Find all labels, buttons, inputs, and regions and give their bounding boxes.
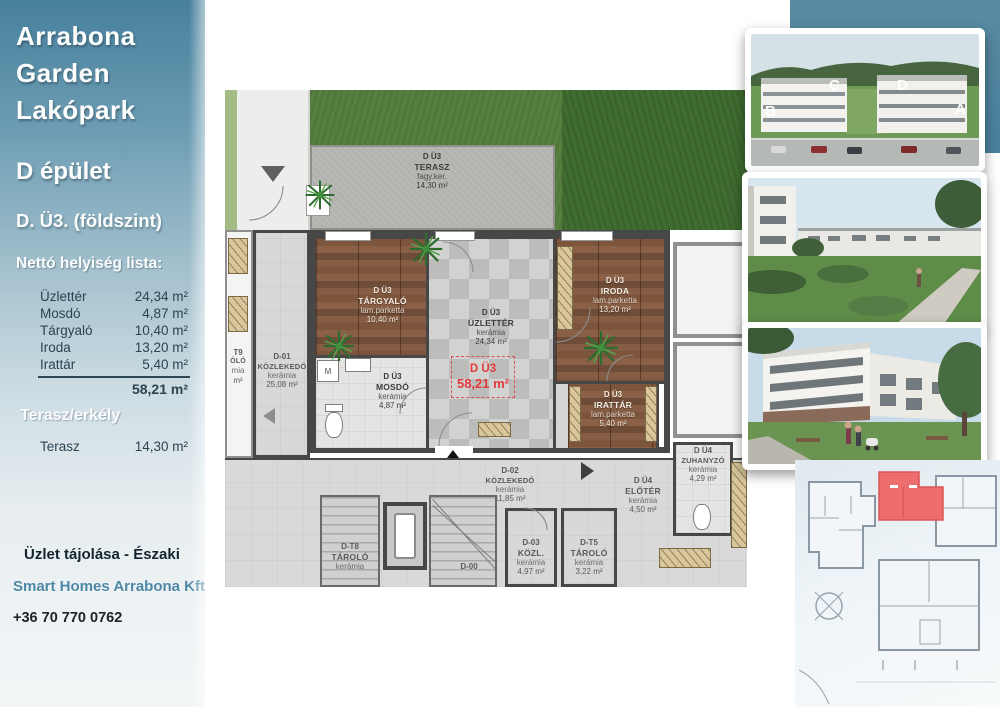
room-area: 10,40 m² bbox=[135, 322, 188, 339]
compass-icon bbox=[815, 592, 843, 620]
room-label-du4-eloter: D Ü4 ELŐTÉR kerámia 4,50 m² bbox=[615, 476, 671, 515]
room-area: 5,40 m² bbox=[142, 356, 188, 373]
room-name: TÁRGYALÓ bbox=[335, 296, 430, 306]
room-unit: D Ü3 bbox=[573, 390, 653, 400]
room-name: MOSDÓ bbox=[355, 382, 430, 392]
room-label-dt9-fragment: T9 ÓLÓ mia m² bbox=[225, 348, 251, 385]
unit-highlight-box: D Ü3 58,21 m² bbox=[451, 356, 515, 398]
toilet-tank bbox=[325, 404, 343, 412]
room-material: lam.parketta bbox=[575, 296, 655, 306]
room-list-table: Üzlettér 24,34 m² Mosdó 4,87 m² Tárgyaló… bbox=[40, 288, 188, 398]
room-unit: D-00 bbox=[447, 562, 491, 572]
room-label-iroda: D Ü3 IRODA lam.parketta 13,20 m² bbox=[575, 276, 655, 315]
project-title-line3: Lakópark bbox=[16, 92, 136, 129]
adjacent-room-right-2 bbox=[673, 342, 747, 438]
room-name: IRATTÁR bbox=[573, 400, 653, 410]
elevator-cab bbox=[394, 513, 416, 559]
room-label-dt8: D-T8 TÁROLÓ kerámia bbox=[318, 542, 382, 571]
company-name: Smart Homes Arrabona Kft bbox=[13, 578, 205, 595]
table-row: Tárgyaló 10,40 m² bbox=[40, 322, 188, 339]
room-unit: D Ü3 bbox=[441, 308, 541, 318]
orientation-note: Üzlet tájolása - Északi bbox=[24, 546, 180, 563]
room-area: 5,40 m² bbox=[573, 419, 653, 429]
room-name: ÓLÓ bbox=[225, 358, 251, 366]
terrace-section-title: Terasz/erkély bbox=[20, 407, 120, 425]
room-label-mosdo: D Ü3 MOSDÓ kerámia 4,87 m² bbox=[355, 372, 430, 411]
room-material: kerámia bbox=[254, 371, 310, 381]
room-material: fagy.ker. bbox=[377, 172, 487, 182]
room-name: TÁROLÓ bbox=[318, 552, 382, 562]
stair-diagonal bbox=[432, 505, 497, 586]
room-area: 4,50 m² bbox=[615, 505, 671, 515]
room-material: kerámia bbox=[470, 485, 550, 495]
room-unit: D Ü3 bbox=[355, 372, 430, 382]
staircase-d00 bbox=[429, 495, 497, 587]
room-material: kerámia bbox=[561, 558, 617, 568]
room-label-dt5: D-T5 TÁROLÓ kerámia 3,22 m² bbox=[561, 538, 617, 577]
courtyard-render bbox=[748, 178, 981, 324]
project-title-line1: Arrabona bbox=[16, 18, 136, 55]
wardrobe-hatch bbox=[731, 462, 747, 548]
room-label-terasz: D Ü3 TERASZ fagy.ker. 14,30 m² bbox=[377, 152, 487, 191]
room-unit: D-T8 bbox=[318, 542, 382, 552]
plant-icon bbox=[581, 328, 621, 368]
building-letter-d: D bbox=[897, 77, 908, 94]
room-area: 14,30 m² bbox=[377, 181, 487, 191]
room-name: KÖZLEKEDŐ bbox=[470, 476, 550, 485]
key-plan-drawing bbox=[795, 460, 1000, 707]
wardrobe-hatch bbox=[557, 246, 573, 330]
room-material: lam.parketta bbox=[335, 306, 430, 316]
floor-plan: D Ü3 TERASZ fagy.ker. 14,30 m² M bbox=[225, 90, 747, 587]
room-name: ZUHANYZÓ bbox=[673, 456, 733, 465]
sidebar: Arrabona Garden Lakópark D épület D. Ü3.… bbox=[0, 0, 205, 707]
building-letter-b: B bbox=[765, 103, 776, 120]
room-name: KÖZL. bbox=[505, 548, 557, 558]
room-name: ÜZLETTÉR bbox=[441, 318, 541, 328]
room-label-irattar: D Ü3 IRATTÁR lam.parketta 5,40 m² bbox=[573, 390, 653, 429]
street-render bbox=[748, 328, 981, 464]
phone-number: +36 70 770 0762 bbox=[13, 610, 122, 626]
table-row: Terasz 14,30 m² bbox=[40, 438, 188, 455]
building-letter-c: C bbox=[829, 77, 840, 94]
room-name: Iroda bbox=[40, 339, 71, 356]
room-area: 10,40 m² bbox=[335, 315, 430, 325]
room-material: kerámia bbox=[355, 392, 430, 402]
walkway bbox=[225, 90, 310, 230]
room-unit: D Ü3 bbox=[575, 276, 655, 286]
room-area: 24,34 m² bbox=[135, 288, 188, 305]
room-unit: D-T5 bbox=[561, 538, 617, 548]
room-area: 4,97 m² bbox=[505, 567, 557, 577]
terrace-name: Terasz bbox=[40, 438, 80, 455]
room-name: Irattár bbox=[40, 356, 75, 373]
room-name: KÖZLEKEDŐ bbox=[254, 362, 310, 371]
terrace-table: Terasz 14,30 m² bbox=[40, 438, 188, 455]
cabinet-hatch bbox=[228, 238, 248, 274]
room-unit: D-02 bbox=[470, 466, 550, 476]
window bbox=[561, 231, 613, 241]
room-area: 13,20 m² bbox=[135, 339, 188, 356]
room-name: Tárgyaló bbox=[40, 322, 93, 339]
room-area: 4,29 m² bbox=[673, 474, 733, 484]
room-material: kerámia bbox=[615, 496, 671, 506]
aerial-render: B C D A bbox=[751, 34, 979, 166]
room-material: mia bbox=[225, 366, 251, 376]
room-area: 13,20 m² bbox=[575, 305, 655, 315]
staircase-dt8 bbox=[320, 495, 380, 587]
room-area: 3,22 m² bbox=[561, 567, 617, 577]
room-label-targyalo: D Ü3 TÁRGYALÓ lam.parketta 10,40 m² bbox=[335, 286, 430, 325]
toilet bbox=[693, 504, 711, 530]
photo-aerial-view: B C D A bbox=[745, 28, 985, 172]
room-label-uzletter: D Ü3 ÜZLETTÉR kerámia 24,34 m² bbox=[441, 308, 541, 347]
terrace-area: 14,30 m² bbox=[135, 438, 188, 455]
room-name: IRODA bbox=[575, 286, 655, 296]
site-key-plan bbox=[795, 460, 1000, 707]
room-material: kerámia bbox=[673, 465, 733, 475]
room-material: kerámia bbox=[441, 328, 541, 338]
room-area: 24,34 m² bbox=[441, 337, 541, 347]
cabinet-hatch bbox=[228, 296, 248, 332]
room-label-du4-zuhanyzo: D Ü4 ZUHANYZÓ kerámia 4,29 m² bbox=[673, 446, 733, 484]
plant-icon bbox=[407, 230, 445, 268]
corridor-d01 bbox=[253, 230, 310, 458]
room-area: 4,87 m² bbox=[142, 305, 188, 322]
elevator bbox=[383, 502, 427, 570]
table-row: Iroda 13,20 m² bbox=[40, 339, 188, 356]
room-name: TÁROLÓ bbox=[561, 548, 617, 558]
room-unit: D Ü4 bbox=[673, 446, 733, 456]
room-name: Mosdó bbox=[40, 305, 81, 322]
bench-hatch bbox=[659, 548, 711, 568]
room-unit: D Ü3 bbox=[335, 286, 430, 296]
room-unit: D-01 bbox=[254, 352, 310, 362]
adjacent-room-right-1 bbox=[673, 242, 747, 338]
corridor-arrow-icon bbox=[263, 408, 275, 424]
building-name: D épület bbox=[16, 158, 111, 186]
total-area: 58,21 m² bbox=[40, 380, 188, 398]
room-material: kerámia bbox=[505, 558, 557, 568]
room-area: 4,87 m² bbox=[355, 401, 430, 411]
washing-machine-label: M bbox=[325, 367, 332, 376]
highlight-area: 58,21 m² bbox=[457, 376, 509, 392]
room-material: kerámia bbox=[318, 562, 382, 572]
room-label-d03: D-03 KÖZL. kerámia 4,97 m² bbox=[505, 538, 557, 577]
room-area: 25,08 m² bbox=[254, 380, 310, 390]
window bbox=[325, 231, 371, 241]
project-title: Arrabona Garden Lakópark bbox=[16, 18, 136, 129]
bench-hatch bbox=[478, 422, 511, 437]
table-row: Üzlettér 24,34 m² bbox=[40, 288, 188, 305]
room-unit: D Ü4 bbox=[615, 476, 671, 486]
grass-area-dark bbox=[562, 90, 747, 230]
room-label-d01: D-01 KÖZLEKEDŐ kerámia 25,08 m² bbox=[254, 352, 310, 390]
room-name: Üzlettér bbox=[40, 288, 87, 305]
room-name: TERASZ bbox=[377, 162, 487, 172]
project-title-line2: Garden bbox=[16, 55, 136, 92]
brochure-page: Arrabona Garden Lakópark D épület D. Ü3.… bbox=[0, 0, 1000, 707]
photo-street-view bbox=[742, 322, 987, 470]
unit-name: D. Ü3. (földszint) bbox=[16, 210, 162, 232]
plant-icon bbox=[303, 178, 337, 212]
room-area: m² bbox=[225, 376, 251, 386]
table-row: Mosdó 4,87 m² bbox=[40, 305, 188, 322]
building-letter-a: A bbox=[955, 101, 966, 118]
plant-icon bbox=[321, 328, 357, 364]
total-divider bbox=[38, 376, 190, 378]
room-unit: T9 bbox=[225, 348, 251, 358]
room-list-title: Nettó helyiség lista: bbox=[16, 255, 162, 273]
grass-edge bbox=[225, 90, 237, 230]
room-material: lam.parketta bbox=[573, 410, 653, 420]
room-unit: D Ü3 bbox=[377, 152, 487, 162]
table-row: Irattár 5,40 m² bbox=[40, 356, 188, 373]
highlight-unit: D Ü3 bbox=[470, 362, 496, 376]
highlighted-unit-shape bbox=[879, 472, 943, 520]
room-unit: D-03 bbox=[505, 538, 557, 548]
corridor-nook bbox=[556, 384, 568, 448]
corridor-arrow-icon bbox=[581, 462, 594, 480]
d00-label: D-00 bbox=[447, 562, 491, 572]
photo-courtyard-view bbox=[742, 172, 987, 330]
walkway-arrow-icon bbox=[261, 166, 285, 182]
room-name: ELŐTÉR bbox=[615, 486, 671, 496]
toilet bbox=[325, 412, 343, 438]
